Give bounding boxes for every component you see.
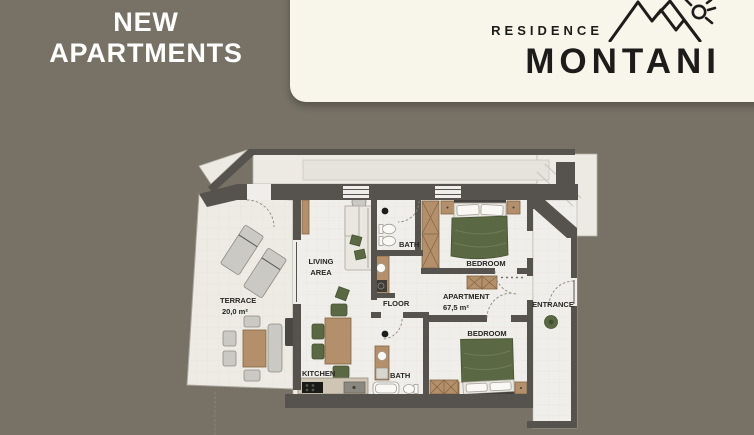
headline: NEW APARTMENTS [0,7,292,69]
label-entrance: ENTRANCE [532,300,574,309]
page-background: NEW APARTMENTS RESIDENCE MONTANI [0,0,754,435]
label-terrace: TERRACE [220,296,256,305]
brand-title: MONTANI [290,43,721,81]
label-floor: FLOOR [383,299,410,308]
brand-subtitle: RESIDENCE [290,23,603,38]
label-apartment: APARTMENT [443,292,490,301]
label-living-2: AREA [310,268,332,277]
label-bedroom-top: BEDROOM [466,259,505,268]
label-bedroom-bottom: BEDROOM [467,329,506,338]
shower-head [382,208,389,215]
headline-line1: NEW [0,7,292,38]
label-kitchen: KITCHEN [302,369,335,378]
terrace-table [243,330,266,367]
label-terrace-area: 20,0 m² [222,307,248,316]
dining-table [325,318,351,364]
brand-card: RESIDENCE MONTANI [290,0,754,102]
shower-head [382,331,389,338]
wardrobe [422,201,439,268]
cooktop [302,382,323,393]
label-bath-top: BATH [399,240,419,249]
floor-plan: TERRACE 20,0 m² LIVING AREA KITCHEN BATH… [185,140,600,435]
entrance-furniture [545,316,558,329]
bed-top [451,199,508,259]
label-bath-bottom: BATH [390,371,410,380]
floor-plan-drawing: TERRACE 20,0 m² LIVING AREA KITCHEN BATH… [185,140,600,435]
bed-bottom [460,337,516,398]
label-apartment-area: 67,5 m² [443,303,469,312]
mountain-sun-icon [608,0,720,42]
label-living-1: LIVING [308,257,333,266]
headline-line2: APARTMENTS [0,38,292,69]
